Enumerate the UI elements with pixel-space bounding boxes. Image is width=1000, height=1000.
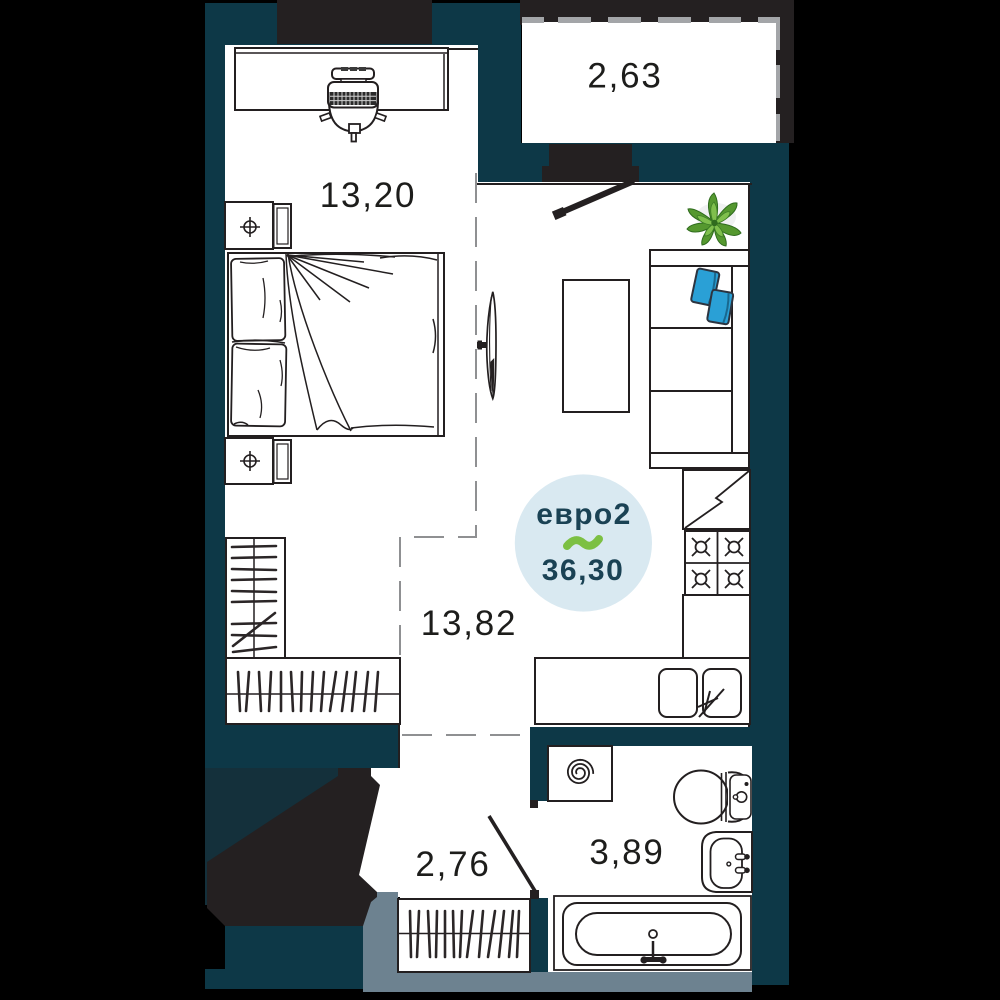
svg-text:36,30: 36,30 xyxy=(542,554,625,587)
svg-text:евро2: евро2 xyxy=(536,498,631,531)
svg-text:3,89: 3,89 xyxy=(589,833,664,872)
svg-text:2,63: 2,63 xyxy=(587,57,662,96)
svg-text:13,82: 13,82 xyxy=(421,604,518,643)
svg-text:13,20: 13,20 xyxy=(320,176,417,215)
svg-text:2,76: 2,76 xyxy=(415,845,490,884)
